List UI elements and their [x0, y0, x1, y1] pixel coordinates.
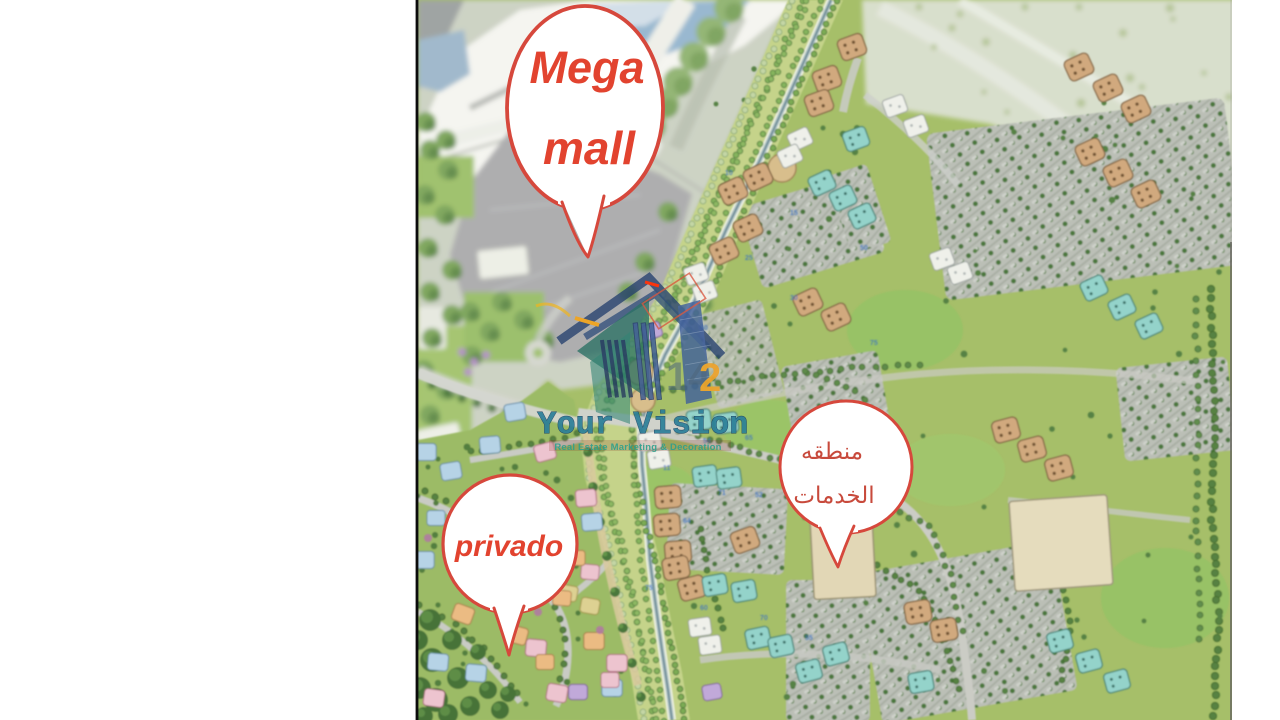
svg-text:Real Estate Marketing & Decora: Real Estate Marketing & Decoration: [554, 442, 721, 453]
svg-text:mall: mall: [543, 122, 636, 174]
svg-text:منطقه: منطقه: [801, 438, 863, 464]
svg-text:Mega: Mega: [529, 42, 644, 93]
svg-text:2: 2: [699, 356, 721, 400]
svg-text:Your Vision: Your Vision: [537, 408, 748, 443]
svg-text:الخدمات: الخدمات: [793, 482, 874, 508]
svg-text:privado: privado: [454, 530, 563, 563]
